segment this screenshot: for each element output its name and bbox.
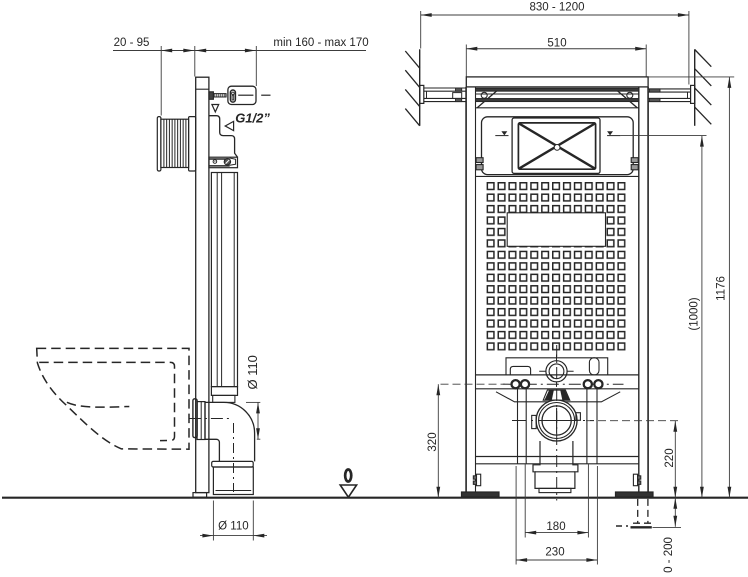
svg-text:G1/2”: G1/2” xyxy=(235,110,270,125)
svg-text:1176: 1176 xyxy=(716,276,728,301)
svg-text:(1000): (1000) xyxy=(689,297,701,330)
svg-text:20 - 95: 20 - 95 xyxy=(114,37,150,49)
svg-text:min 160 - max 170: min 160 - max 170 xyxy=(273,37,368,49)
svg-text:220: 220 xyxy=(664,448,676,467)
svg-text:Ø 110: Ø 110 xyxy=(218,521,248,533)
svg-text:830 - 1200: 830 - 1200 xyxy=(530,2,585,14)
svg-text:0 - 200: 0 - 200 xyxy=(663,537,675,573)
svg-text:320: 320 xyxy=(427,432,439,451)
svg-text:180: 180 xyxy=(546,521,565,533)
svg-text:Ø 110: Ø 110 xyxy=(245,355,260,389)
svg-text:510: 510 xyxy=(547,38,566,50)
svg-text:230: 230 xyxy=(545,547,564,559)
